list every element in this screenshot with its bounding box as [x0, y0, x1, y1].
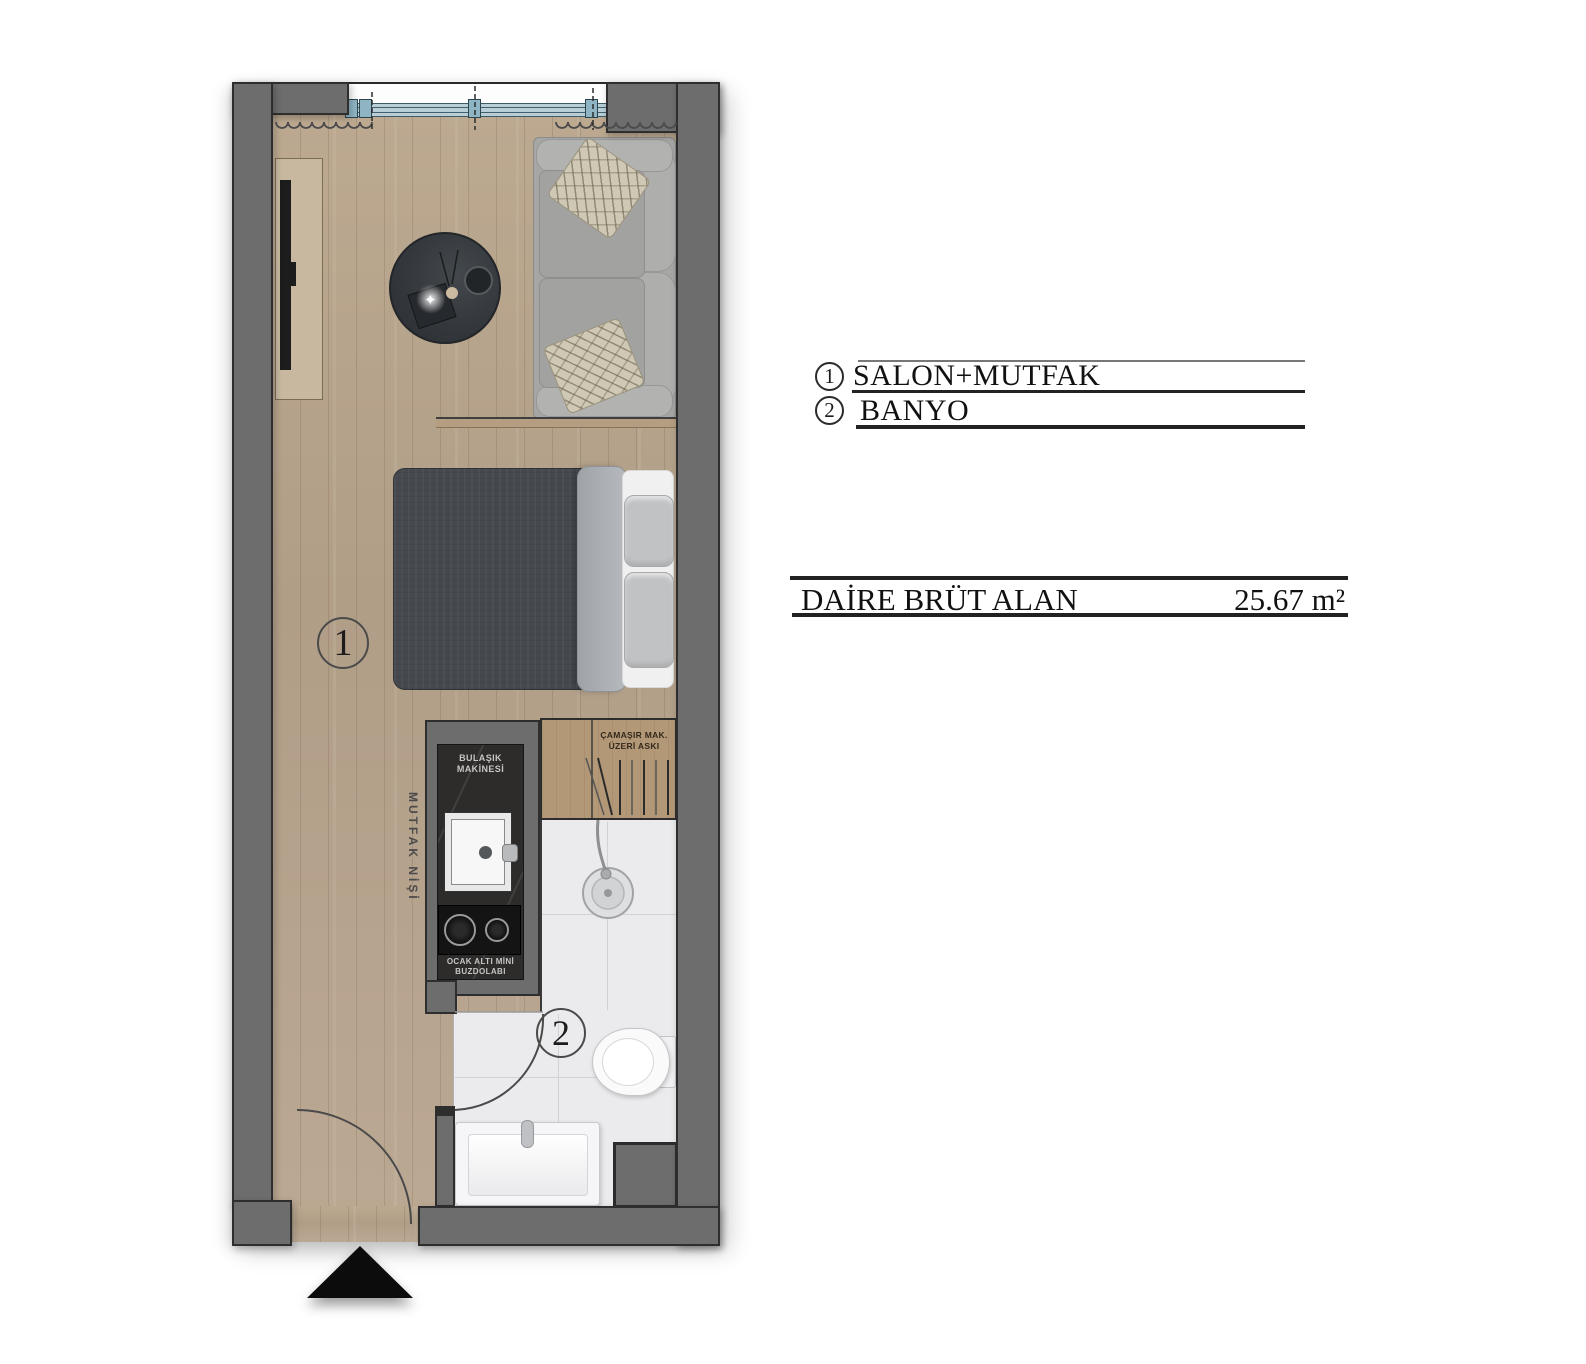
legend-item-2-circle: 2 [815, 396, 844, 425]
hanger-line [586, 758, 604, 815]
legend-number: 1 [824, 364, 835, 389]
entrance-door-arc [297, 1110, 411, 1224]
shower-hose [597, 820, 606, 872]
legend-rule [856, 425, 1305, 429]
curtain-left [276, 122, 372, 128]
coffee-table-twig [452, 250, 458, 284]
curtain-right [556, 122, 676, 128]
legend-item-1-label: SALON+MUTFAK [853, 359, 1100, 393]
hanger-line [598, 758, 612, 815]
coffee-table-twig [440, 252, 449, 286]
bathroom-door-arc [455, 1014, 543, 1110]
legend-item-1-circle: 1 [815, 362, 844, 391]
room-label-salon: 1 [317, 617, 369, 669]
room-label-banyo: 2 [536, 1008, 586, 1058]
legend-number: 2 [824, 398, 835, 423]
shower-head [601, 869, 611, 879]
area-table-rule-bottom [792, 613, 1348, 617]
legend-rule [852, 390, 1305, 393]
floor-plan: ✦ BULAŞIK MAKİNESİ OCAK ALTI MİNİ BUZDOL… [0, 0, 1586, 1364]
area-table-rule-top [790, 576, 1348, 580]
legend-item-2-label: BANYO [860, 394, 969, 428]
plan-linework [0, 0, 1586, 1364]
entrance-arrow [307, 1246, 413, 1298]
shower-drain [604, 889, 612, 897]
room-number: 2 [552, 1012, 570, 1054]
room-number: 1 [334, 621, 353, 665]
